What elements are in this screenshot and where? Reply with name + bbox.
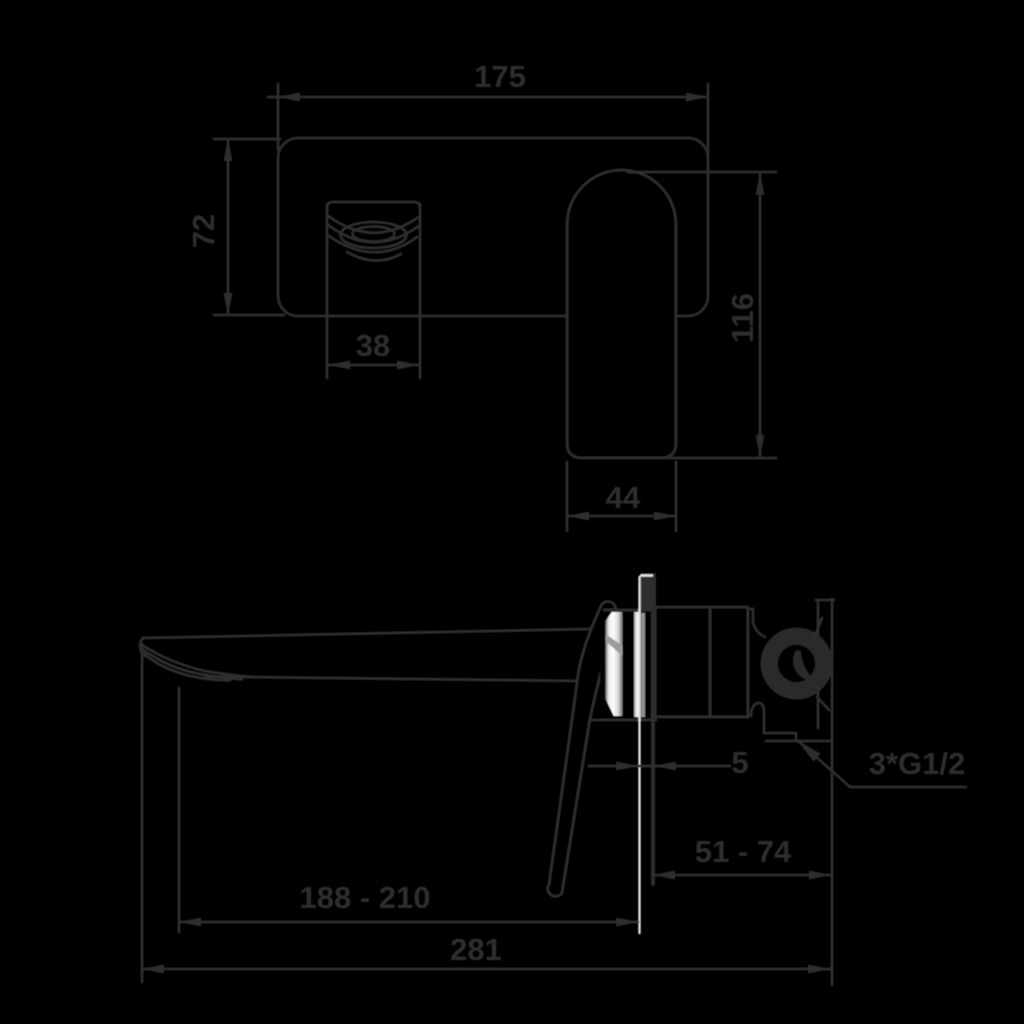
svg-text:281: 281 [450, 932, 502, 967]
svg-text:51 - 74: 51 - 74 [695, 834, 792, 869]
svg-text:188 - 210: 188 - 210 [300, 880, 431, 915]
svg-text:38: 38 [356, 328, 390, 363]
svg-text:44: 44 [606, 480, 641, 515]
svg-text:3*G1/2: 3*G1/2 [869, 746, 966, 781]
svg-text:175: 175 [474, 59, 526, 94]
svg-text:116: 116 [725, 293, 760, 343]
svg-text:5: 5 [731, 745, 748, 780]
svg-text:72: 72 [186, 214, 221, 248]
